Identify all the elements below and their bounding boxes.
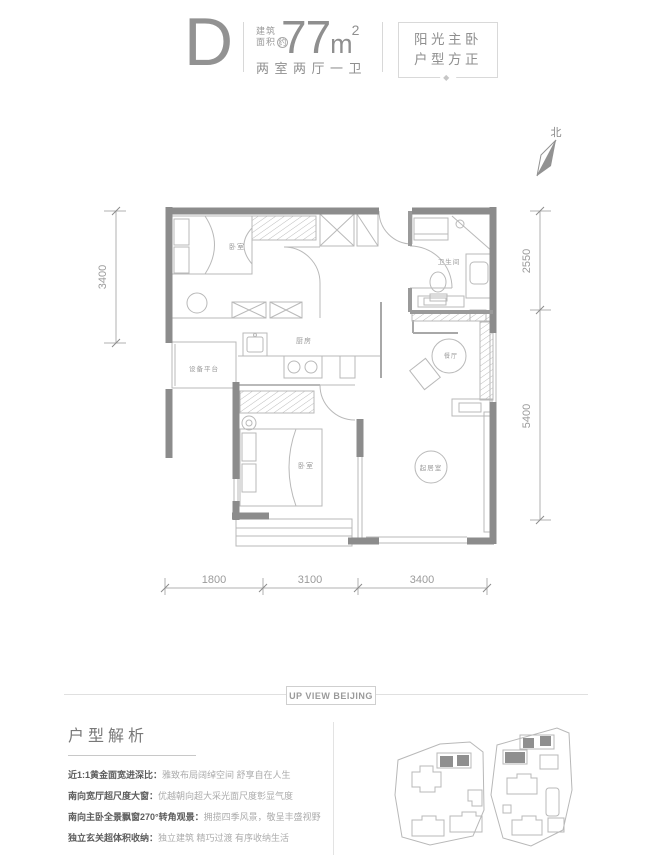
bathroom-fixtures bbox=[412, 216, 493, 321]
dining-furniture bbox=[410, 339, 466, 390]
room-label-bedroom-top: 卧室 bbox=[229, 242, 245, 251]
floorplan-page: 卧室 厨房 卫生间 餐厅 起居室 卧室 设备平台 3400 2550 5400 … bbox=[0, 0, 652, 855]
analysis-title: 户型解析 bbox=[68, 722, 330, 746]
analysis-point-text: 独立建筑 精巧过渡 有序收纳生活 bbox=[158, 833, 289, 843]
analysis-point-text: 拥揽四季风景，敬呈丰盛视野 bbox=[204, 812, 321, 822]
dim-right-top: 2550 bbox=[521, 249, 533, 273]
siteplan-right bbox=[491, 728, 572, 846]
analysis-point-label: 南向宽厅超尺度大窗： bbox=[68, 791, 158, 801]
analysis-vertical-divider bbox=[333, 722, 334, 855]
dimension-labels: 3400 2550 5400 1800 3100 3400 bbox=[97, 249, 533, 586]
room-label-bedroom-bottom: 卧室 bbox=[298, 461, 314, 470]
header-divider-2 bbox=[382, 22, 383, 72]
room-label-living: 起居室 bbox=[420, 463, 443, 472]
analysis-underline bbox=[68, 755, 196, 756]
unit-type-letter: D bbox=[184, 8, 233, 76]
living-furniture bbox=[415, 412, 492, 532]
room-label-dining: 餐厅 bbox=[444, 352, 458, 360]
analysis-points: 近1:1黄金面宽进深比：雅致布局阔绰空间 舒享自在人生 南向宽厅超尺度大窗：优越… bbox=[68, 769, 330, 844]
analysis-point: 南向主卧全景飘窗270°转角观景：拥揽四季风景，敬呈丰盛视野 bbox=[68, 811, 330, 823]
header-divider-1 bbox=[243, 22, 244, 72]
analysis-point-label: 南向主卧全景飘窗270°转角观景： bbox=[68, 812, 204, 822]
dim-bottom-right: 3400 bbox=[410, 574, 434, 586]
analysis-point-text: 雅致布局阔绰空间 舒享自在人生 bbox=[162, 770, 291, 780]
wardrobe-hatch-top bbox=[252, 216, 316, 240]
analysis-point: 南向宽厅超尺度大窗：优越朝向超大采光面尺度彰显气度 bbox=[68, 790, 330, 802]
entry-closet-hatch bbox=[480, 322, 493, 400]
dim-bottom-middle: 3100 bbox=[298, 574, 322, 586]
area-unit: m bbox=[330, 29, 352, 59]
analysis-point-label: 近1:1黄金面宽进深比： bbox=[68, 770, 162, 780]
diamond-ornament-icon: ◆ bbox=[440, 73, 456, 83]
area-value: 77m2 bbox=[281, 14, 358, 60]
room-label-equipment: 设备平台 bbox=[189, 364, 219, 373]
tagline-box: 阳光主卧 户型方正 ◆ bbox=[398, 22, 498, 78]
analysis-point-text: 优越朝向超大采光面尺度彰显气度 bbox=[158, 791, 293, 801]
layout-summary: 两室两厅一卫 bbox=[256, 58, 367, 77]
analysis-section: 户型解析 近1:1黄金面宽进深比：雅致布局阔绰空间 舒享自在人生 南向宽厅超尺度… bbox=[68, 722, 330, 853]
analysis-point-label: 独立玄关超体积收纳： bbox=[68, 833, 158, 843]
bedroom-top-furniture bbox=[172, 216, 252, 313]
siteplan-left bbox=[395, 742, 484, 845]
compass-north-label: 北 bbox=[551, 126, 562, 139]
dim-bottom-left: 1800 bbox=[202, 574, 226, 586]
tagline-line1: 阳光主卧 bbox=[414, 30, 482, 50]
tagline-line2: 户型方正 bbox=[414, 50, 482, 70]
room-label-kitchen: 厨房 bbox=[296, 336, 312, 345]
brand-badge: UP VIEW BEIJING bbox=[286, 686, 376, 705]
analysis-point: 独立玄关超体积收纳：独立建筑 精巧过渡 有序收纳生活 bbox=[68, 832, 330, 844]
dim-left: 3400 bbox=[97, 265, 109, 289]
area-exponent: 2 bbox=[352, 22, 359, 38]
analysis-point: 近1:1黄金面宽进深比：雅致布局阔绰空间 舒享自在人生 bbox=[68, 769, 330, 781]
door-entry bbox=[379, 211, 412, 244]
room-labels: 卧室 厨房 卫生间 餐厅 起居室 卧室 设备平台 bbox=[189, 242, 460, 472]
dim-right-bottom: 5400 bbox=[521, 404, 533, 428]
walls bbox=[166, 207, 494, 544]
bedroom-bottom-furniture bbox=[236, 385, 355, 506]
room-label-bathroom: 卫生间 bbox=[438, 257, 461, 266]
equipment-platform-box bbox=[172, 342, 236, 388]
north-arrow-icon: 北 bbox=[537, 126, 562, 176]
shaft-boxes bbox=[320, 214, 378, 246]
